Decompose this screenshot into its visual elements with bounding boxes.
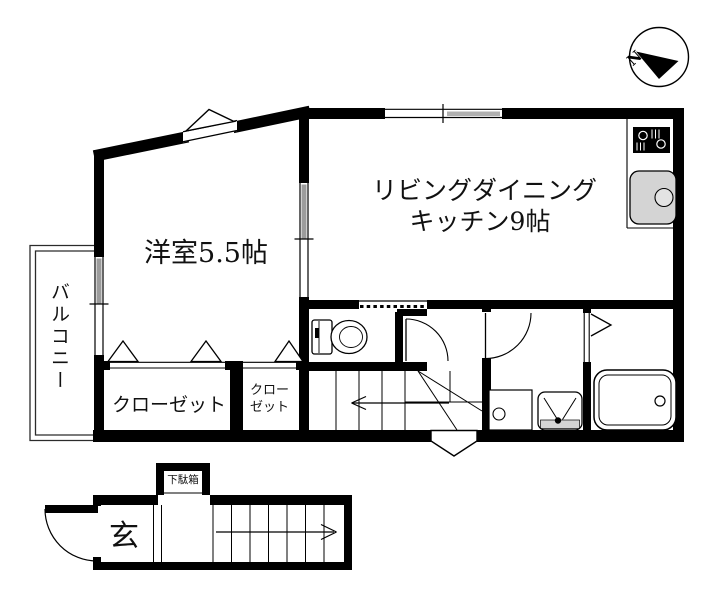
room-label-ldk-line2: キッチン9帖 (372, 207, 588, 238)
room-label-ldk: リビングダイニング キッチン9帖 (372, 176, 588, 237)
bathtub-icon (594, 370, 676, 430)
stairs-entry (213, 505, 324, 562)
label-shoe-cabinet: 下駄箱 (162, 472, 204, 487)
stove-icon (633, 127, 670, 153)
window-top-ldk (385, 104, 502, 123)
compass-icon: N (623, 28, 688, 87)
washing-machine-icon (489, 390, 532, 430)
window-balcony (90, 257, 109, 355)
room-label-entrance: 玄 (109, 511, 139, 555)
floor-plan-drawing: N (0, 0, 718, 600)
bay-window-icon (183, 110, 237, 143)
floor-plan-canvas: N 洋室5.5帖 リビングダイニング キッチン9帖 バルコニー クローゼット ク… (0, 0, 718, 600)
bay-projection (431, 431, 477, 457)
closet-door-tracks (110, 361, 296, 370)
entry-door (45, 505, 101, 561)
closet-door-triangle-icons (108, 341, 303, 362)
room-label-closet-large: クローゼット (105, 390, 233, 417)
hall-door (406, 319, 448, 361)
room-label-ldk-line1: リビングダイニング (372, 176, 588, 207)
stairs-up-arrow (352, 397, 450, 410)
room-label-closet-small-line1: クロー (242, 383, 297, 400)
room-label-balcony: バルコニー (46, 282, 73, 432)
washbasin-icon (538, 392, 582, 430)
sink-icon (630, 171, 676, 224)
room-label-western-room: 洋室5.5帖 (130, 231, 282, 270)
folding-door-icon (591, 314, 611, 336)
sliding-door-room-ldk (295, 183, 314, 297)
bathroom-door-track (583, 313, 591, 362)
entry-step-lines (154, 505, 162, 562)
room-label-closet-small: クロー ゼット (242, 383, 297, 417)
open-wall-dashed (359, 300, 427, 309)
stairs-entry-arrow (216, 525, 337, 540)
room-label-closet-small-line2: ゼット (242, 400, 297, 417)
toilet-icon (312, 320, 367, 354)
washroom-door (482, 312, 531, 359)
